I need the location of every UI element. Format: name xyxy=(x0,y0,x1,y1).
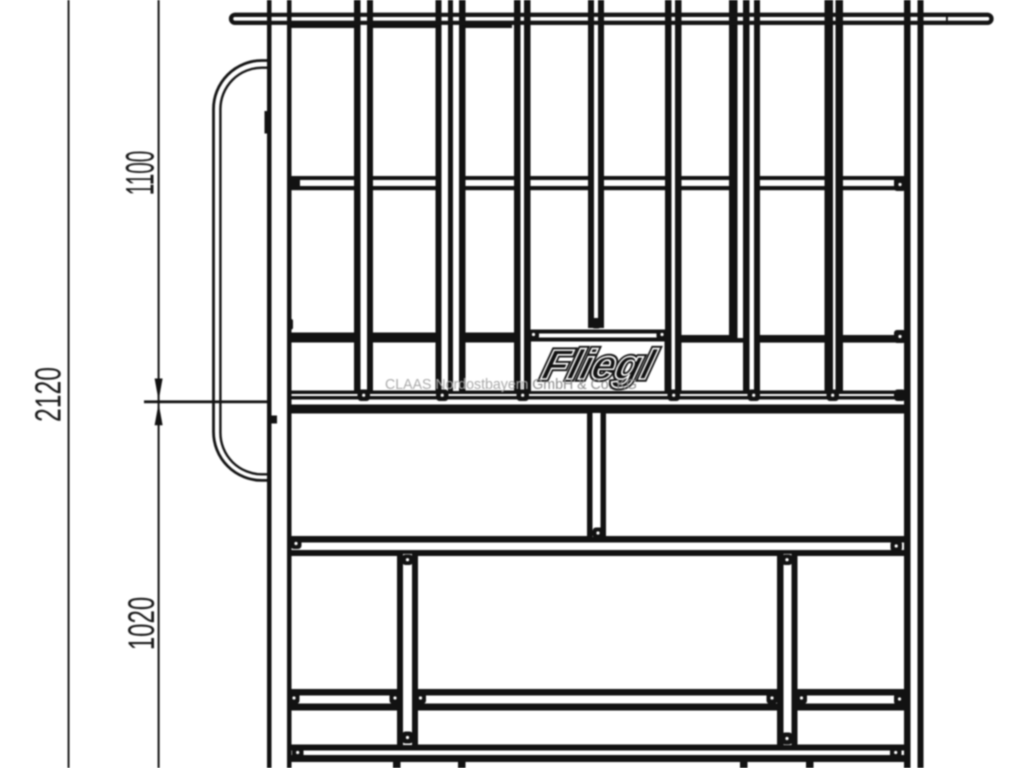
svg-text:1020: 1020 xyxy=(121,597,163,650)
svg-text:1100: 1100 xyxy=(117,151,162,195)
svg-text:CLAAS Nordostbayern GmbH & Co.: CLAAS Nordostbayern GmbH & Co. KG xyxy=(385,376,637,393)
svg-text:2120: 2120 xyxy=(28,367,69,422)
